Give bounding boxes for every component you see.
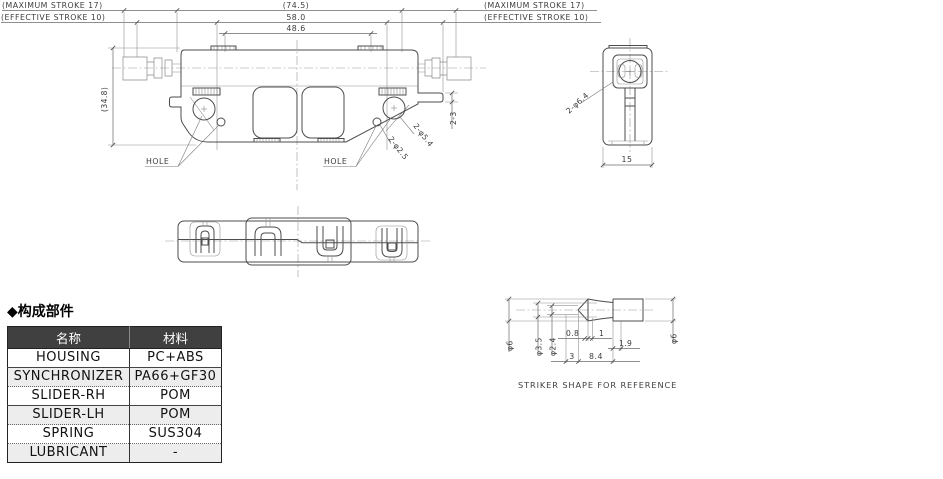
- table-row: SLIDER-RH POM: [8, 387, 222, 406]
- dim-hole-large: 2-φ5.4: [411, 122, 435, 149]
- bore-center-mark: [626, 68, 634, 76]
- part-name: LUBRICANT: [8, 444, 130, 463]
- housing-outline: [170, 50, 444, 142]
- dim-overall-width: (74.5): [283, 1, 309, 10]
- dim-height: (34.8): [100, 87, 109, 112]
- components-panel: ◆构成部件 名称 材料 HOUSING PC+ABS SYNCHRONIZER …: [7, 301, 222, 463]
- dim-d24: φ2.4: [549, 337, 558, 356]
- top-tab-hatching: [214, 46, 381, 50]
- side-bottom-lip: [608, 141, 648, 145]
- centerlines: [112, 40, 486, 190]
- hole-label-left: HOLE: [146, 157, 169, 166]
- dim-hole-small: 2-φ2.5: [386, 135, 410, 162]
- drawing-sheet: (MAXIMUM STROKE 17) (EFFECTIVE STROKE 10…: [0, 0, 943, 479]
- col-header-name: 名称: [8, 327, 130, 349]
- dim-1-9: 1.9: [619, 339, 632, 348]
- bottom-centerlines: [165, 206, 430, 277]
- dim-1: 1: [599, 329, 604, 338]
- dim-d6-right: φ6: [670, 333, 679, 344]
- slot2-n-shape: [255, 227, 281, 256]
- striker-view: φ6 φ3.5 φ2.4 φ6 0.8 1 1.9 3 8.4 STRIKER …: [505, 297, 679, 390]
- dim-tab: 2-3: [449, 111, 458, 125]
- plunger-right: [425, 57, 471, 80]
- dim-0-8: 0.8: [566, 329, 579, 338]
- mount-hole-small-right: [373, 118, 381, 126]
- stroke-max-left-label: (MAXIMUM STROKE 17): [2, 1, 103, 10]
- dim-opening: 2-φ6.4: [564, 91, 590, 116]
- table-header-row: 名称 材料: [8, 327, 222, 349]
- part-name: HOUSING: [8, 349, 130, 368]
- tooth-strips: [193, 88, 406, 142]
- table-row: HOUSING PC+ABS: [8, 349, 222, 368]
- part-material: -: [129, 444, 221, 463]
- part-material: POM: [129, 406, 221, 425]
- dim-d6-left: φ6: [506, 340, 515, 351]
- hole-center-marks: [201, 105, 397, 112]
- dim-8-4: 8.4: [589, 352, 603, 361]
- table-row: SPRING SUS304: [8, 425, 222, 444]
- part-material: PC+ABS: [129, 349, 221, 368]
- stroke-eff-right-label: (EFFECTIVE STROKE 10): [484, 13, 588, 22]
- part-name: SLIDER-RH: [8, 387, 130, 406]
- components-heading: ◆构成部件: [7, 301, 222, 321]
- col-header-material: 材料: [129, 327, 221, 349]
- dim-3: 3: [569, 352, 574, 361]
- plunger-left: [123, 57, 172, 80]
- striker-caption: STRIKER SHAPE FOR REFERENCE: [518, 380, 677, 390]
- part-material: POM: [129, 387, 221, 406]
- table-row: SYNCHRONIZER PA66+GF30: [8, 368, 222, 387]
- part-name: SPRING: [8, 425, 130, 444]
- front-view: (MAXIMUM STROKE 17) (EFFECTIVE STROKE 10…: [1, 1, 601, 190]
- stroke-eff-left-label: (EFFECTIVE STROKE 10): [1, 13, 105, 22]
- dim-inner-width: 48.6: [286, 24, 305, 33]
- part-name: SLIDER-LH: [8, 406, 130, 425]
- side-body: [603, 48, 652, 145]
- components-table: 名称 材料 HOUSING PC+ABS SYNCHRONIZER PA66+G…: [7, 326, 222, 463]
- table-row: SLIDER-LH POM: [8, 406, 222, 425]
- front-extension-lines: [108, 12, 458, 150]
- window-opening-right: [302, 87, 344, 138]
- stroke-max-right-label: (MAXIMUM STROKE 17): [484, 1, 585, 10]
- table-row: LUBRICANT -: [8, 444, 222, 463]
- part-name: SYNCHRONIZER: [8, 368, 130, 387]
- bottom-view: [165, 206, 430, 277]
- bottom-mid-section: [246, 218, 351, 265]
- dim-body-width: 58.0: [286, 13, 305, 22]
- mount-hole-small-left: [217, 118, 225, 126]
- dim-side-width: 15: [622, 155, 633, 164]
- hole-label-right: HOLE: [324, 157, 347, 166]
- front-dimension-ticks: [111, 8, 458, 147]
- dim-d35: φ3.5: [535, 337, 544, 356]
- side-view: 2-φ6.4 15: [564, 38, 670, 168]
- window-opening-left: [253, 87, 297, 138]
- part-material: SUS304: [129, 425, 221, 444]
- part-material: PA66+GF30: [129, 368, 221, 387]
